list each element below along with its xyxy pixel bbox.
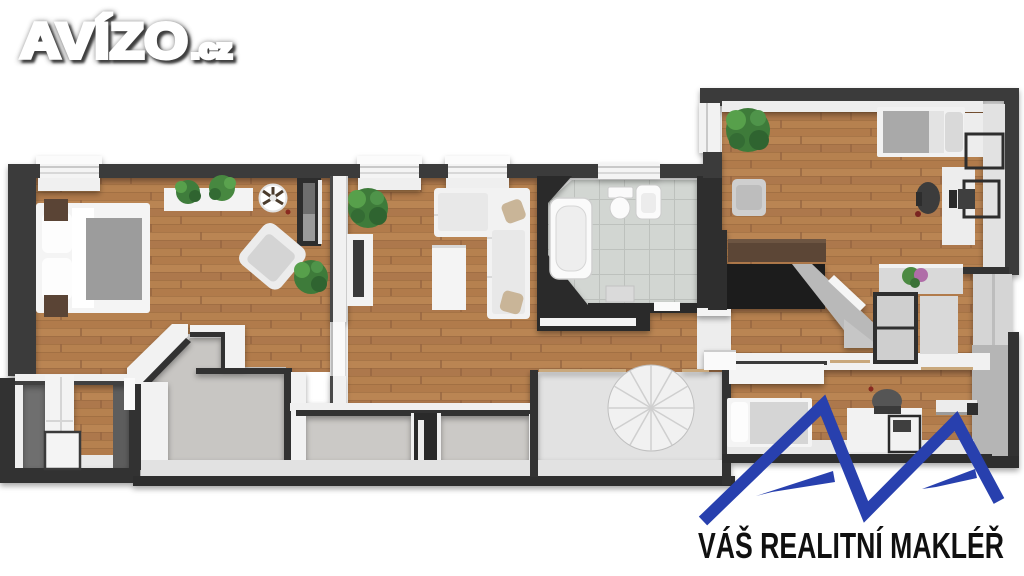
svg-text:.cz: .cz — [191, 34, 232, 64]
svg-text:AVÍZO: AVÍZO — [20, 13, 188, 69]
svg-text:VÁŠ REALITNÍ MAKLÉŘ: VÁŠ REALITNÍ MAKLÉŘ — [698, 524, 1004, 566]
